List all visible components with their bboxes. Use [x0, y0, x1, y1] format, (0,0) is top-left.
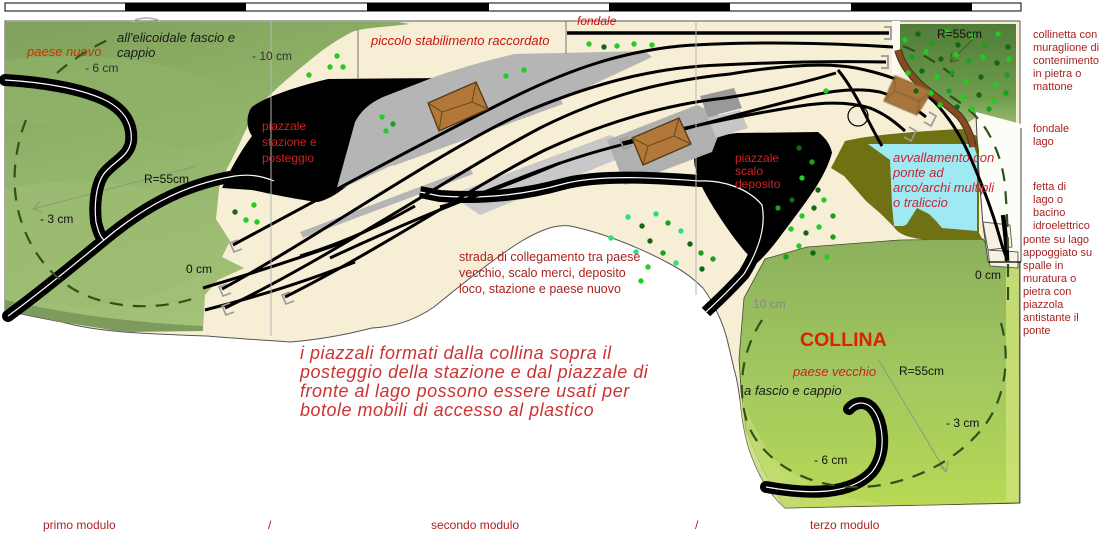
svg-text:vecchio, scalo merci, deposito: vecchio, scalo merci, deposito: [459, 266, 626, 280]
svg-text:ponte: ponte: [1023, 325, 1051, 337]
svg-text:- 3 cm: - 3 cm: [946, 416, 979, 430]
svg-text:antistante il: antistante il: [1023, 312, 1079, 324]
svg-text:contenimento: contenimento: [1033, 55, 1099, 67]
svg-text:fondale: fondale: [577, 14, 617, 28]
svg-text:mattone: mattone: [1033, 81, 1073, 93]
svg-text:o traliccio: o traliccio: [893, 195, 948, 210]
svg-text:arco/archi multipli: arco/archi multipli: [893, 180, 995, 195]
svg-text:COLLINA: COLLINA: [800, 329, 887, 351]
svg-text:ponte ad: ponte ad: [892, 165, 944, 180]
svg-text:- 3 cm: - 3 cm: [40, 212, 73, 226]
svg-text:deposito: deposito: [735, 177, 781, 191]
svg-text:piazzale: piazzale: [735, 151, 779, 165]
svg-text:R=55cm: R=55cm: [937, 27, 982, 41]
svg-text:- 6 cm: - 6 cm: [85, 61, 118, 75]
svg-text:strada di collegamento tra pae: strada di collegamento tra paese: [459, 250, 640, 264]
svg-text:scalo: scalo: [735, 164, 763, 178]
svg-text:piazzola: piazzola: [1023, 299, 1064, 311]
svg-text:cappio: cappio: [117, 45, 155, 60]
svg-text:appoggiato su: appoggiato su: [1023, 247, 1092, 259]
svg-text:0 cm: 0 cm: [975, 268, 1001, 282]
svg-text:posteggio della stazione e dal: posteggio della stazione e dal piazzale …: [299, 362, 649, 382]
svg-text:all'elicoidale fascio e: all'elicoidale fascio e: [117, 30, 235, 45]
svg-text:piazzale: piazzale: [262, 119, 306, 133]
svg-text:loco, stazione e paese nuovo: loco, stazione e paese nuovo: [459, 282, 621, 296]
svg-text:- 10 cm: - 10 cm: [252, 49, 292, 63]
svg-text:stazione e: stazione e: [262, 135, 317, 149]
svg-text:R=55cm: R=55cm: [899, 364, 944, 378]
svg-text:lago: lago: [1033, 136, 1054, 148]
svg-text:- 6 cm: - 6 cm: [814, 453, 847, 467]
svg-text:botole mobili di accesso al pl: botole mobili di accesso al plastico: [300, 400, 594, 420]
svg-text:fondale: fondale: [1033, 123, 1069, 135]
svg-text:muraglione di: muraglione di: [1033, 42, 1099, 54]
svg-text:R=55cm: R=55cm: [144, 172, 189, 186]
svg-text:ponte su lago: ponte su lago: [1023, 234, 1089, 246]
svg-text:lago o: lago o: [1033, 194, 1063, 206]
svg-text:muratura o: muratura o: [1023, 273, 1076, 285]
svg-text:paese nuovo: paese nuovo: [26, 44, 101, 59]
svg-text:fetta di: fetta di: [1033, 181, 1066, 193]
svg-text:paese vecchio: paese vecchio: [792, 364, 876, 379]
svg-text:in pietra o: in pietra o: [1033, 68, 1081, 80]
svg-text:primo modulo: primo modulo: [43, 518, 116, 532]
svg-text:piccolo stabilimento raccordat: piccolo stabilimento raccordato: [370, 33, 549, 48]
svg-text:idroelettrico: idroelettrico: [1033, 220, 1090, 232]
svg-text:spalle in: spalle in: [1023, 260, 1063, 272]
svg-text:i piazzali formati dalla colli: i piazzali formati dalla collina sopra i…: [300, 343, 612, 363]
svg-text:0 cm: 0 cm: [186, 262, 212, 276]
svg-text:fronte al lago possono essere: fronte al lago possono essere usati per: [300, 381, 630, 401]
svg-text:10 cm: 10 cm: [753, 297, 786, 311]
svg-text:bacino: bacino: [1033, 207, 1065, 219]
svg-text:avvallamento con: avvallamento con: [893, 150, 994, 165]
svg-text:a fascio e cappio: a fascio e cappio: [744, 383, 842, 398]
svg-text:terzo modulo: terzo modulo: [810, 518, 880, 532]
svg-text:pietra con: pietra con: [1023, 286, 1071, 298]
svg-text:posteggio: posteggio: [262, 151, 314, 165]
svg-text:collinetta con: collinetta con: [1033, 29, 1097, 41]
svg-text:secondo modulo: secondo modulo: [431, 518, 519, 532]
